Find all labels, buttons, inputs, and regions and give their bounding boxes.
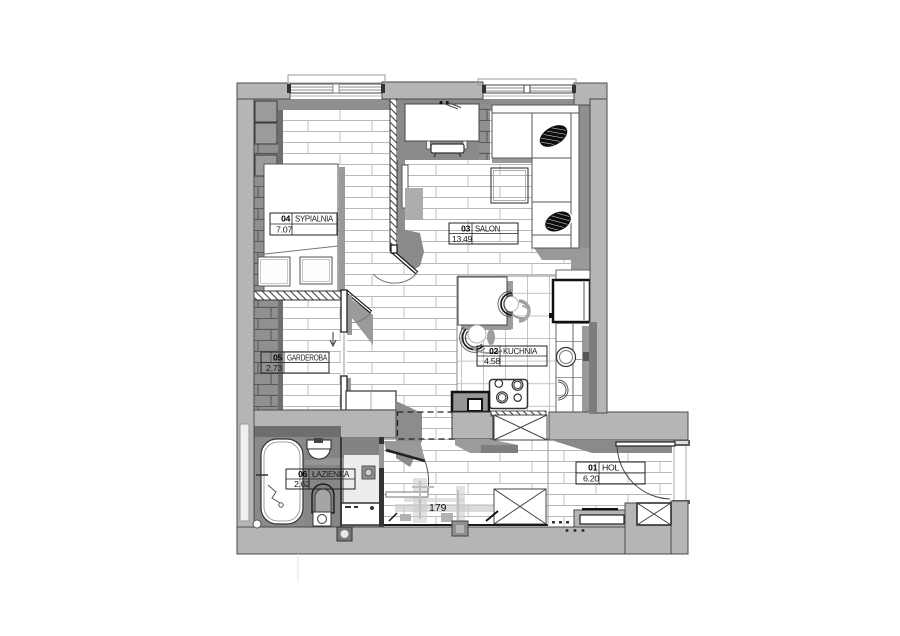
svg-text:06: 06 [298,469,307,479]
svg-text:ŁAZIENKA: ŁAZIENKA [312,470,350,479]
svg-text:SALON: SALON [475,225,501,234]
svg-text:02: 02 [489,346,498,356]
svg-text:2.73: 2.73 [266,364,283,373]
svg-text:7.07: 7.07 [276,226,293,235]
svg-text:2.62: 2.62 [294,480,311,489]
svg-text:6.20: 6.20 [583,475,600,484]
svg-text:04: 04 [281,214,290,224]
svg-text:05: 05 [273,353,282,363]
svg-text:SYPIALNIA: SYPIALNIA [295,215,334,224]
svg-text:01: 01 [588,463,597,473]
svg-text:GARDEROBA: GARDEROBA [287,354,328,363]
svg-text:4.58: 4.58 [484,357,501,366]
svg-text:HOL: HOL [602,464,620,473]
svg-text:03: 03 [461,224,470,234]
svg-text:KUCHNIA: KUCHNIA [503,347,538,356]
svg-text:13.49: 13.49 [452,235,473,244]
svg-text:179: 179 [429,502,447,514]
